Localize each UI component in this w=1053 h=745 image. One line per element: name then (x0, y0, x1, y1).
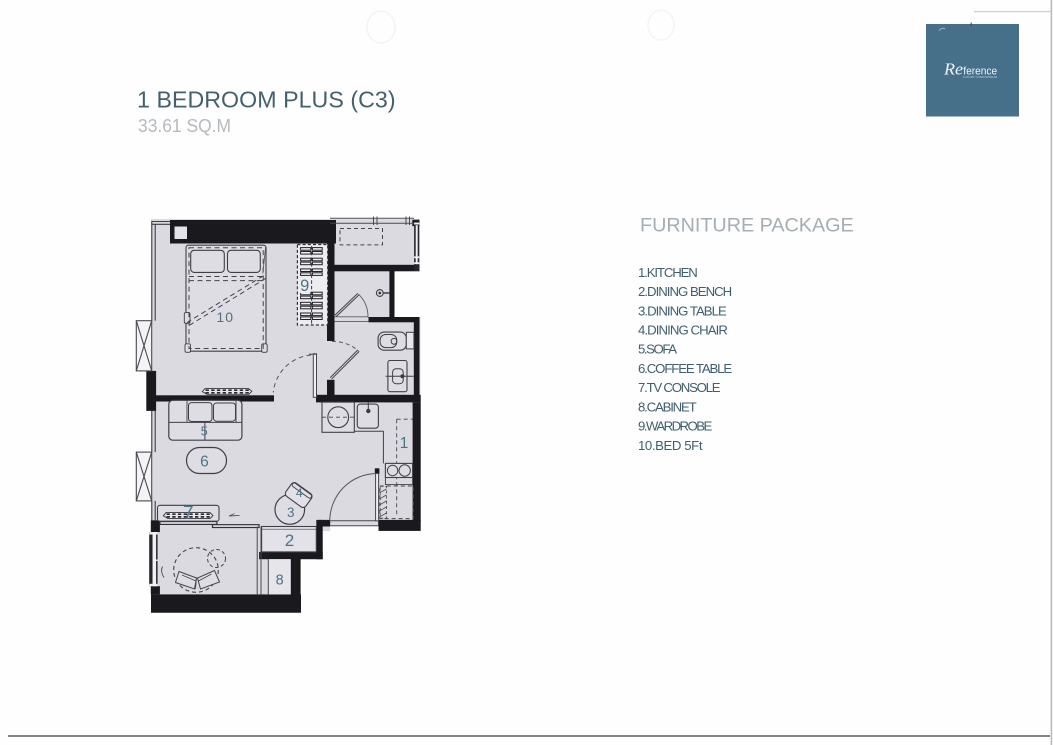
svg-text:1 BEDROOM PLUS (C3): 1 BEDROOM PLUS (C3) (137, 87, 396, 113)
svg-text:LUXURY CONDOMINIUM: LUXURY CONDOMINIUM (963, 75, 997, 79)
svg-text:8: 8 (276, 573, 284, 589)
svg-text:33.61 SQ.M: 33.61 SQ.M (138, 115, 231, 136)
svg-text:4: 4 (296, 486, 303, 500)
svg-text:2: 2 (285, 531, 294, 550)
svg-text:7.TV CONSOLE: 7.TV CONSOLE (638, 380, 721, 395)
svg-text:6.COFFEE TABLE: 6.COFFEE TABLE (638, 361, 732, 376)
svg-text:7: 7 (183, 502, 194, 524)
svg-text:2.DINING BENCH: 2.DINING BENCH (638, 284, 732, 299)
svg-text:1: 1 (400, 435, 409, 452)
svg-text:3: 3 (287, 505, 295, 520)
svg-text:FURNITURE PACKAGE: FURNITURE PACKAGE (640, 215, 854, 237)
svg-text:5: 5 (201, 425, 208, 439)
svg-text:3.DINING TABLE: 3.DINING TABLE (638, 303, 727, 318)
svg-text:4.DINING CHAIR: 4.DINING CHAIR (638, 323, 728, 338)
svg-text:10: 10 (216, 309, 234, 325)
svg-text:8.CABINET: 8.CABINET (638, 399, 697, 414)
svg-text:10.BED 5Ft: 10.BED 5Ft (638, 438, 703, 453)
svg-text:1.KITCHEN: 1.KITCHEN (638, 265, 698, 280)
svg-text:5.SOFA: 5.SOFA (638, 342, 677, 357)
svg-text:6: 6 (200, 454, 209, 471)
svg-text:9.WARDROBE: 9.WARDROBE (638, 419, 713, 434)
svg-text:9: 9 (300, 277, 309, 295)
